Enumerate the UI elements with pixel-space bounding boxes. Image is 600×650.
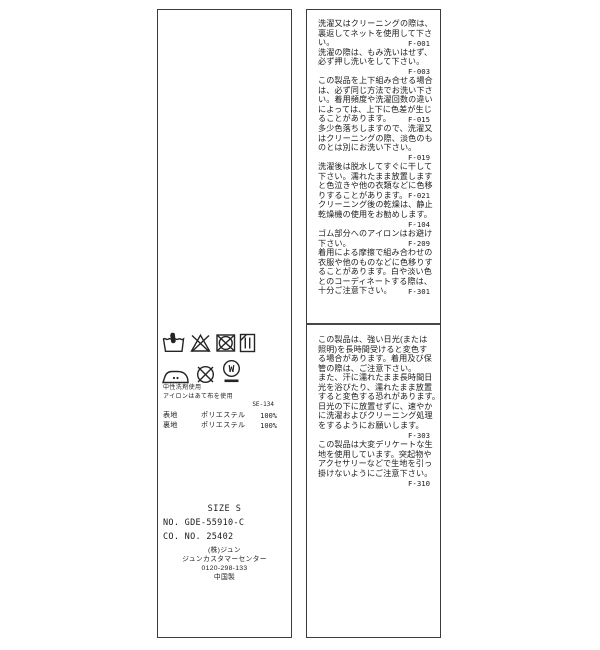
text-line: 下さい。濡れたまま放置します	[318, 172, 430, 182]
size-label: SIZE S	[158, 504, 291, 514]
care-symbols-row-1	[161, 332, 256, 353]
text-line: (株)ジュン	[158, 546, 291, 555]
text-line: い。F-001	[318, 38, 430, 48]
text-line: 洗濯又はクリーニングの際は、	[318, 19, 430, 29]
do-not-dryclean-icon	[195, 364, 216, 385]
text-line: は、必ず同じ方法でお洗い下さ	[318, 86, 430, 96]
text-line: 中国製	[158, 573, 291, 582]
text-line: 光を浴びたり、濡れたまま放置	[318, 383, 430, 393]
detergent-notes: 中性洗剤使用アイロンはあて布を使用	[163, 384, 233, 402]
care-label-scan: W 中性洗剤使用アイロンはあて布を使用 SE-134 表地ポリエステル100%裏…	[0, 0, 600, 650]
text-line: F-104	[318, 219, 430, 229]
text-line: 掛けないようにご注意下さい。	[318, 469, 430, 479]
text-line: 0120-298-133	[158, 564, 291, 573]
care-instructions-lower: この製品は、強い日光(または照明)を長時間受けると変色する場合があります。着用及…	[307, 335, 440, 488]
text-line: 裏返してネットを使用して下さ	[318, 29, 430, 39]
text-line: すると変色する恐れがあります。	[318, 392, 430, 402]
text-line: F-303	[318, 430, 430, 440]
text-line: 多少色落ちしますので、洗濯又	[318, 124, 430, 134]
care-code: SE-134	[252, 401, 274, 408]
text-line: 日光の下に放置せずに、速やか	[318, 402, 430, 412]
text-line: ゴム部分へのアイロンはお避け	[318, 229, 430, 239]
care-instructions-upper: 洗濯又はクリーニングの際は、裏返してネットを使用して下さい。F-001洗濯の際は…	[307, 10, 440, 296]
composition-row: 表地ポリエステル100%	[163, 411, 277, 421]
text-line: ジュンカスタマーセンター	[158, 555, 291, 564]
text-line: アクセサリーなどで生地を引っ	[318, 459, 430, 469]
text-line: 照明)を長時間受けると変色す	[318, 345, 430, 355]
text-line: はクリーニングの際、淡色のも	[318, 134, 430, 144]
text-line: る場合があります。着用及び保	[318, 354, 430, 364]
text-line: 洗濯の際は、もみ洗いはせず、	[318, 48, 430, 58]
text-line: アイロンはあて布を使用	[163, 393, 233, 402]
text-line: F-003	[318, 67, 430, 77]
co-number: CO. NO. 25402	[163, 532, 233, 542]
text-line: 衣服や他のものなどに色移りす	[318, 258, 430, 268]
care-symbols-row-2: W	[161, 359, 242, 385]
text-line: 乾燥機の使用をお勧めします。	[318, 210, 430, 220]
drip-dry-in-shade-icon	[239, 333, 256, 353]
text-line: ることがあります。F-015	[318, 114, 430, 124]
text-line: この製品は、強い日光(または	[318, 335, 430, 345]
iron-low-heat-icon	[161, 366, 190, 385]
section-divider	[307, 323, 440, 325]
text-line: この製品を上下組み合せる場合	[318, 76, 430, 86]
text-line: りすることがあります。F-021	[318, 191, 430, 201]
text-line: い。着用頻度や洗濯回数の違い	[318, 95, 430, 105]
text-line: 地を使用しています。突起物や	[318, 450, 430, 460]
text-line: F-310	[318, 478, 430, 488]
text-line: 下さい。F-209	[318, 239, 430, 249]
left-care-label: W 中性洗剤使用アイロンはあて布を使用 SE-134 表地ポリエステル100%裏…	[157, 9, 292, 638]
text-line: 管の際は、ご注意下さい。	[318, 364, 430, 374]
text-line: のとは別にお洗い下さい。	[318, 143, 430, 153]
text-line: この製品は大変デリケートな生	[318, 440, 430, 450]
text-line: 中性洗剤使用	[163, 384, 233, 393]
hand-wash-icon	[161, 332, 187, 353]
care-ref-code: F-301	[408, 287, 430, 297]
care-ref-code: F-310	[408, 479, 430, 489]
do-not-bleach-icon	[189, 332, 212, 353]
text-line: クリーニング後の乾燥は、静止	[318, 200, 430, 210]
wet-clean-icon: W	[221, 359, 242, 385]
text-line: F-019	[318, 153, 430, 163]
do-not-tumble-dry-icon	[214, 332, 237, 353]
text-line: と色泣きや他の衣類などに色移	[318, 181, 430, 191]
text-line: ることがあります。白や淡い色	[318, 267, 430, 277]
right-care-label: 洗濯又はクリーニングの際は、裏返してネットを使用して下さい。F-001洗濯の際は…	[306, 9, 441, 638]
text-line: とのコーディネートする際は、	[318, 277, 430, 287]
svg-text:W: W	[229, 364, 235, 375]
text-line: 十分ご注意下さい。F-301	[318, 286, 430, 296]
text-line: また、汗に濡れたまま長時間日	[318, 373, 430, 383]
manufacturer-info: (株)ジュンジュンカスタマーセンター0120-298-133中国製	[158, 546, 291, 582]
text-line: をするようにお願いします。	[318, 421, 430, 431]
composition-row: 裏地ポリエステル100%	[163, 421, 277, 431]
text-line: 洗濯後は脱水してすぐに干して	[318, 162, 430, 172]
text-line: に洗濯およびクリーニング処理	[318, 411, 430, 421]
text-line: 着用による摩擦で組み合わせの	[318, 248, 430, 258]
item-number: NO. GDE-55910-C	[163, 518, 244, 528]
text-line: 必ず押し洗いをして下さい。	[318, 57, 430, 67]
fabric-composition: 表地ポリエステル100%裏地ポリエステル100%	[163, 411, 277, 431]
